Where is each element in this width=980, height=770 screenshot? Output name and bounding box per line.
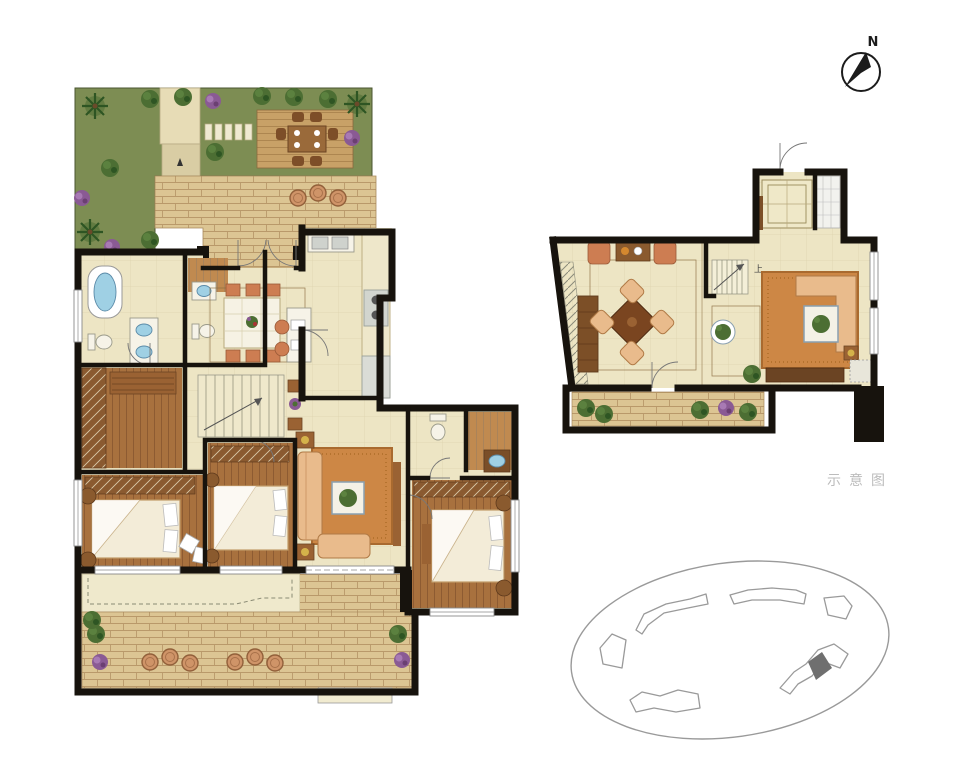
sofa [298,452,322,540]
floor-plan-sheet: 上 [0,0,980,770]
sink [312,237,328,249]
toilet [88,334,112,350]
bedroom-1 [80,475,210,570]
tv-cabinet [393,462,401,546]
wardrobe [85,477,195,494]
south-terrace [82,574,412,703]
loveseat [318,534,370,558]
lounge [762,272,872,382]
site-building [630,690,700,712]
garden-deck [257,110,353,168]
toilet [192,324,215,339]
wardrobe [211,446,289,462]
north-label: N [868,35,879,50]
tea-corner [588,241,676,264]
tv-cabinet [766,368,844,382]
balcony [82,574,300,612]
upper-foyer [756,143,840,230]
wardrobe [82,368,106,468]
site-building [730,588,806,604]
cabinet [578,296,598,372]
fridge [362,356,390,398]
outdoor-table [288,126,326,152]
site-building [600,634,626,668]
bedroom-2 [205,440,293,568]
site-building [636,594,708,634]
ground-floor-plan [74,87,519,703]
toilet [430,414,446,440]
north-arrow: N [842,35,880,91]
schematic-caption: 示意图 [827,472,893,489]
site-plan [559,542,900,759]
living-room [296,432,401,560]
dressing-room [82,368,182,468]
site-building [824,596,852,619]
stepping-stones [205,124,252,140]
wardrobe [414,482,510,497]
upper-floor-plan: 上 [553,143,884,442]
